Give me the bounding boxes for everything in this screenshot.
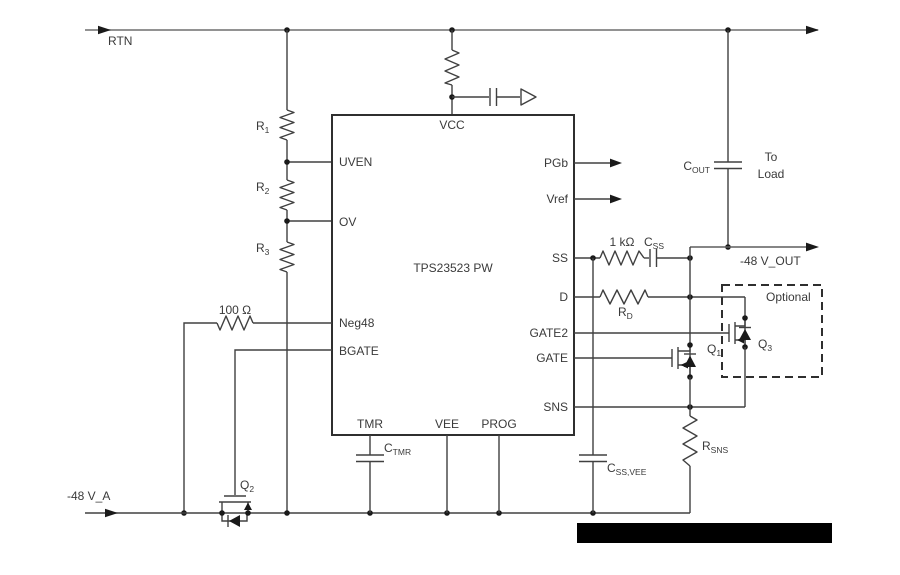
pin-label-vcc: VCC	[439, 118, 465, 132]
pin-label-sns: SNS	[543, 400, 568, 414]
label-100ohm: 100 Ω	[219, 303, 251, 317]
wire-neg48-down	[184, 323, 217, 513]
mosfet-arrow-icon	[244, 503, 252, 511]
pin-label-vee: VEE	[435, 417, 459, 431]
label-r3: R3	[256, 241, 270, 257]
load-label-line2: Load	[758, 167, 785, 181]
optional-label: Optional	[766, 290, 811, 304]
arrow-right-icon	[610, 159, 622, 168]
drain-network	[574, 258, 745, 410]
vcc-network	[445, 30, 536, 115]
resistor-vcc	[445, 50, 459, 85]
wire-bgate	[235, 350, 332, 495]
q1-mosfet	[672, 342, 696, 407]
resistor-100ohm	[217, 316, 253, 330]
arrow-right-icon	[806, 243, 819, 252]
junction-dot	[245, 510, 251, 516]
net-label-48vout: -48 V_OUT	[740, 254, 801, 268]
pin-label-ov: OV	[339, 215, 356, 229]
label-q1: Q1	[707, 342, 721, 358]
chip-tps23523: VCC UVEN OV Neg48 BGATE TMR VEE PROG PGb…	[332, 115, 574, 435]
label-q2: Q2	[240, 478, 254, 494]
rsns-network	[683, 407, 697, 513]
junction-dot	[742, 315, 748, 321]
junction-dot	[219, 510, 225, 516]
pin-label-pgb: PGb	[544, 156, 568, 170]
q3-mosfet	[729, 297, 751, 407]
arrow-right-icon	[98, 26, 111, 34]
pin-label-bgate: BGATE	[339, 344, 379, 358]
pin-label-ss: SS	[552, 251, 568, 265]
resistor-rd	[600, 290, 648, 304]
schematic-canvas: VCC UVEN OV Neg48 BGATE TMR VEE PROG PGb…	[0, 0, 900, 575]
label-css: CSS	[644, 235, 664, 251]
q1-bodydiode-icon	[684, 356, 696, 368]
load-label-line1: To	[765, 150, 778, 164]
label-q3: Q3	[758, 337, 772, 353]
label-rsns: RSNS	[702, 439, 728, 455]
capacitor-vcc	[490, 88, 497, 106]
net-label-48va: -48 V_A	[67, 489, 110, 503]
ss-network	[574, 249, 693, 267]
capacitor-cout	[714, 162, 742, 169]
arrow-right-icon	[610, 195, 622, 204]
resistor-r3	[280, 242, 294, 272]
schematic-page: VCC UVEN OV Neg48 BGATE TMR VEE PROG PGb…	[0, 0, 900, 575]
pin-label-gate: GATE	[536, 351, 568, 365]
redaction-bar	[577, 523, 832, 543]
bottom-rail	[85, 509, 690, 517]
neg48-bgate-network	[181, 316, 332, 516]
resistor-r1	[280, 110, 294, 140]
q2-bodydiode-icon	[229, 515, 240, 527]
pin-label-prog: PROG	[481, 417, 516, 431]
pin-label-neg48: Neg48	[339, 316, 375, 330]
label-r2: R2	[256, 180, 270, 196]
label-rd: RD	[618, 305, 633, 321]
q3-bodydiode-icon	[739, 329, 751, 340]
arrow-right-icon	[105, 509, 118, 517]
label-r1: R1	[256, 119, 270, 135]
q2-mosfet	[219, 496, 252, 527]
junction-dot	[687, 342, 693, 348]
label-cout: COUT	[683, 159, 710, 175]
junction-dot	[284, 218, 290, 224]
junction-dot	[284, 510, 290, 516]
net-label-rtn: RTN	[108, 34, 132, 48]
label-cssvee: CSS,VEE	[607, 461, 647, 477]
capacitor-cssvee	[579, 455, 607, 462]
pin-label-uven: UVEN	[339, 155, 372, 169]
resistor-rsns	[683, 416, 697, 466]
label-1k: 1 kΩ	[610, 235, 635, 249]
junction-dot	[284, 159, 290, 165]
pin-label-tmr: TMR	[357, 417, 383, 431]
pin-label-d: D	[559, 290, 568, 304]
resistor-1k	[600, 251, 644, 265]
output-network	[690, 30, 819, 258]
arrow-right-icon	[806, 26, 819, 34]
triangle-buffer-icon	[521, 89, 536, 105]
chip-name: TPS23523 PW	[413, 261, 493, 275]
capacitor-ctmr	[356, 455, 384, 462]
resistor-r2	[280, 180, 294, 210]
label-ctmr: CTMR	[384, 441, 411, 457]
pin-label-gate2: GATE2	[530, 326, 569, 340]
capacitor-css	[650, 249, 657, 267]
uv-ov-divider	[280, 30, 332, 513]
status-outputs	[574, 159, 622, 204]
pin-label-vref: Vref	[546, 192, 568, 206]
